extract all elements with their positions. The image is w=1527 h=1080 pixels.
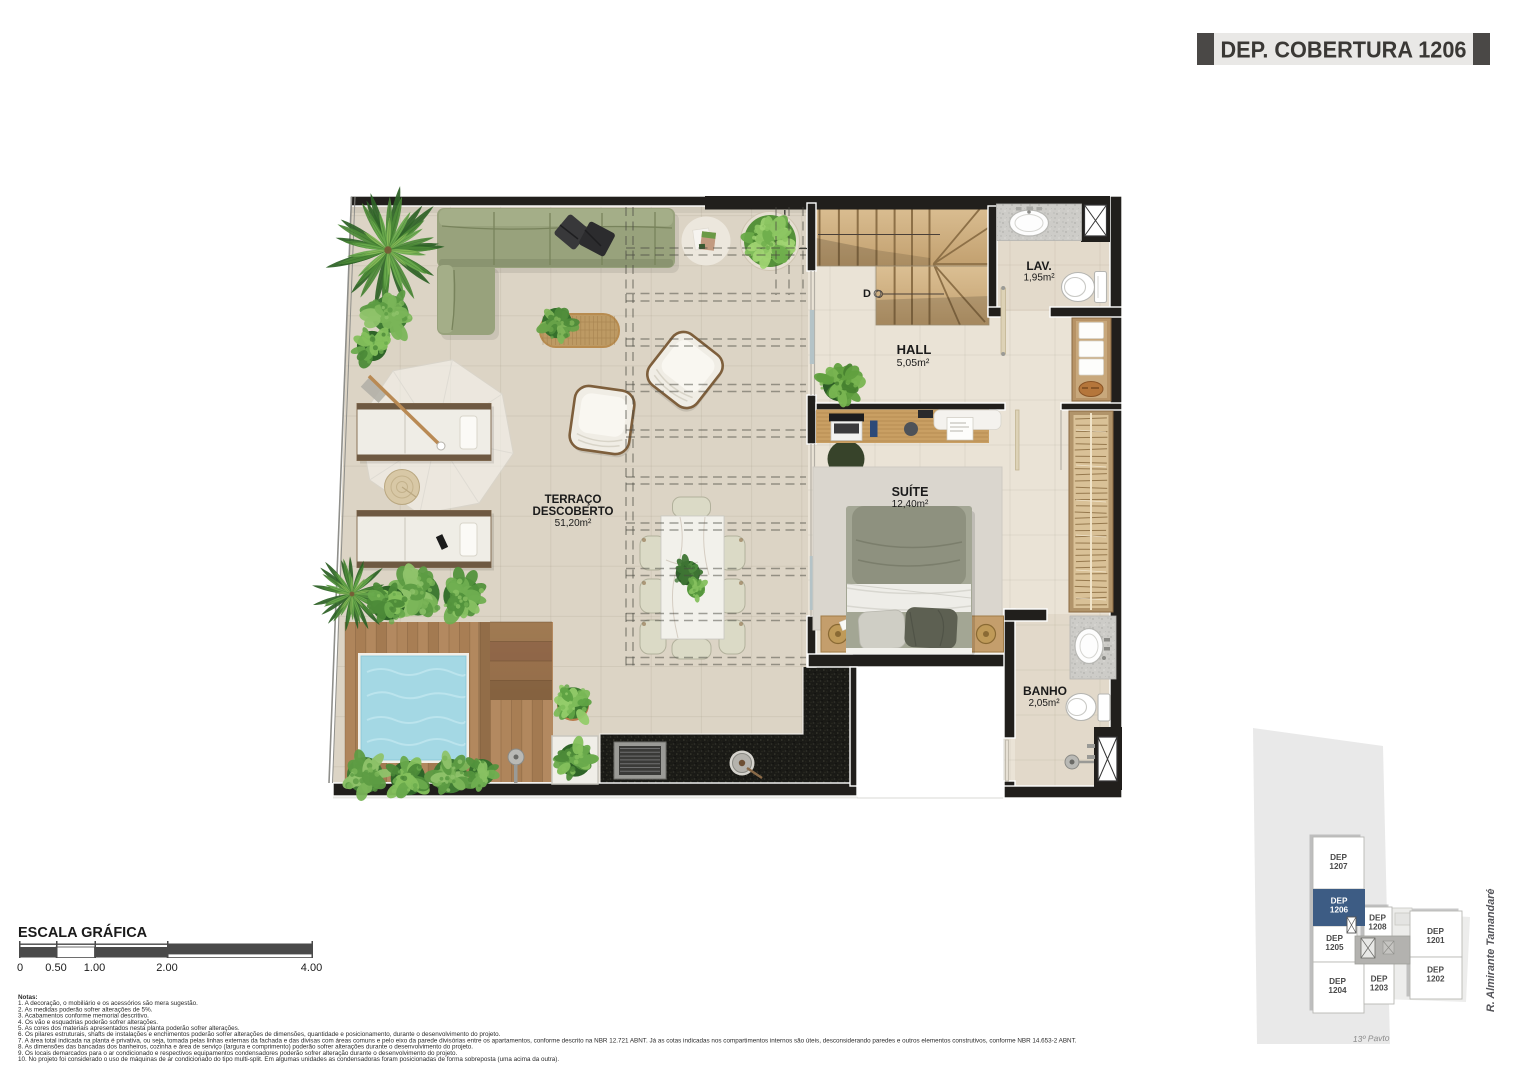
svg-text:DEP: DEP xyxy=(1331,897,1348,906)
svg-text:1204: 1204 xyxy=(1328,986,1347,995)
svg-text:LAV.: LAV. xyxy=(1026,259,1051,273)
svg-text:DEP: DEP xyxy=(1371,975,1388,984)
svg-text:DESCOBERTO: DESCOBERTO xyxy=(533,506,614,518)
svg-text:DEP: DEP xyxy=(1330,853,1347,862)
svg-text:ESCALA GRÁFICA: ESCALA GRÁFICA xyxy=(18,924,148,941)
svg-text:13º Pavto: 13º Pavto xyxy=(1353,1033,1390,1044)
svg-text:51,20m²: 51,20m² xyxy=(555,518,592,529)
svg-text:1207: 1207 xyxy=(1329,862,1348,871)
svg-text:0.50: 0.50 xyxy=(45,962,66,974)
svg-text:1206: 1206 xyxy=(1330,906,1349,915)
svg-text:1.00: 1.00 xyxy=(84,962,105,974)
svg-text:HALL: HALL xyxy=(897,342,932,357)
svg-text:DEP: DEP xyxy=(1427,966,1444,975)
svg-text:R. Almirante Tamandaré: R. Almirante Tamandaré xyxy=(1485,889,1497,1012)
svg-text:DEP: DEP xyxy=(1329,977,1346,986)
svg-text:5,05m²: 5,05m² xyxy=(897,357,930,369)
svg-text:TERRAÇO: TERRAÇO xyxy=(545,494,602,506)
svg-text:2,05m²: 2,05m² xyxy=(1028,698,1060,709)
svg-text:4.00: 4.00 xyxy=(301,962,322,974)
svg-text:1201: 1201 xyxy=(1426,936,1445,945)
svg-text:DEP: DEP xyxy=(1369,914,1386,923)
svg-text:12,40m²: 12,40m² xyxy=(892,499,929,510)
svg-text:DEP: DEP xyxy=(1326,934,1343,943)
svg-text:SUÍTE: SUÍTE xyxy=(892,484,929,499)
svg-text:0: 0 xyxy=(17,962,23,974)
svg-text:1203: 1203 xyxy=(1370,984,1389,993)
svg-text:2.00: 2.00 xyxy=(156,962,177,974)
svg-text:1208: 1208 xyxy=(1368,923,1387,932)
svg-text:1,95m²: 1,95m² xyxy=(1023,273,1055,284)
svg-text:1205: 1205 xyxy=(1325,943,1344,952)
svg-text:DEP: DEP xyxy=(1427,927,1444,936)
svg-text:DEP. COBERTURA 1206: DEP. COBERTURA 1206 xyxy=(1221,37,1467,63)
svg-text:10. No projeto foi considerado: 10. No projeto foi considerado o uso de … xyxy=(18,1056,559,1063)
svg-text:BANHO: BANHO xyxy=(1023,684,1067,698)
svg-text:1202: 1202 xyxy=(1426,975,1445,984)
svg-text:D: D xyxy=(863,288,871,300)
